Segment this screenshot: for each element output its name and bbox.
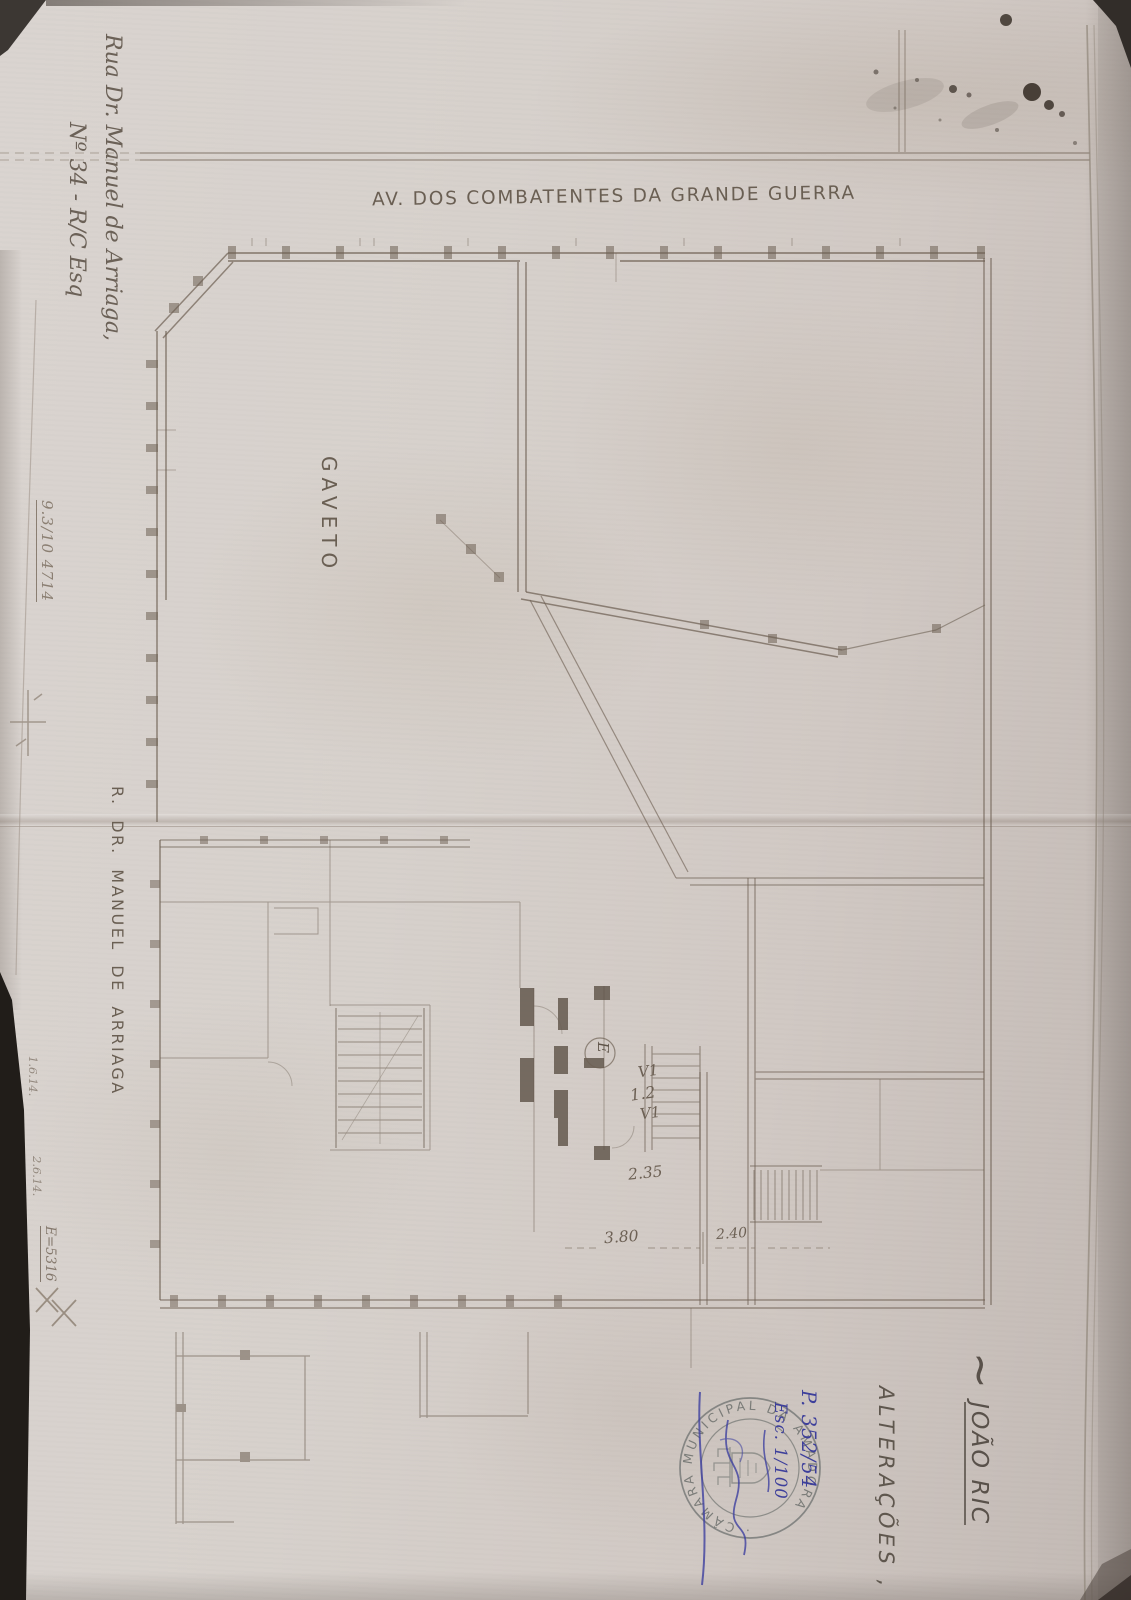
scanned-floor-plan: · CÂMARA MUNICIPAL DA AMADORA	[0, 0, 1131, 1600]
scale-note: Esc. 1/100	[771, 1402, 790, 1500]
pencil-ref-text: 9.3/10 4714	[36, 500, 56, 602]
margin-address-note: Rua Dr. Manuel de Arriaga, Nº 34 - R/C E…	[58, 34, 130, 354]
dim-2-40-label: 2.40	[715, 1225, 747, 1243]
stair-a	[336, 1008, 424, 1148]
v1-lower-label: V1	[639, 1103, 661, 1123]
pencil-note-3-text: E=5316	[40, 1226, 58, 1282]
stair-c	[750, 1166, 822, 1222]
right-paper-edge	[1084, 0, 1131, 1600]
lower-apartment-walls	[150, 840, 985, 1368]
pencil-note-2: 2.6.14.	[30, 1156, 44, 1196]
title-tilde: ~	[955, 1352, 1006, 1397]
alteracoes-label: ALTERAÇÕES ,	[874, 1386, 898, 1591]
pencil-note-3: E=5316	[42, 1226, 58, 1282]
project-title-label: ~ JOÃO RIC	[955, 1352, 1006, 1525]
x-marks-icon	[36, 1288, 76, 1326]
address-line-1: Rua Dr. Manuel de Arriaga,	[100, 34, 125, 341]
dim-3-80-label: 3.80	[603, 1227, 639, 1247]
gaveto-label: GAVETO	[317, 456, 341, 574]
pencil-note-1: 1.6.14.	[26, 1056, 40, 1096]
address-line-2: Nº 34 - R/C Esq	[58, 34, 94, 354]
bottom-fragment-walls	[176, 1332, 528, 1524]
mid-band-walls	[160, 836, 984, 885]
left-wall-gaveto	[146, 253, 233, 822]
process-number-note: P. 352/54	[797, 1390, 820, 1489]
left-fold-line	[16, 300, 36, 975]
dim-2-35-label: 2.35	[627, 1162, 663, 1184]
ink-blotches	[863, 14, 1077, 145]
street-left-label: R. DR. MANUEL DE ARRIAGA	[108, 786, 127, 1096]
elevator-letter: E	[594, 1042, 612, 1053]
pencil-ref-note: 9.3/10 4714	[38, 500, 56, 602]
dark-corner-top-left	[0, 0, 46, 56]
v1-upper-label: V1	[637, 1061, 659, 1081]
top-facade-wall	[228, 238, 985, 261]
interior-walls-upper	[436, 253, 991, 1305]
plus-mark-icon	[10, 690, 46, 756]
dim-1-2-label: 1.2	[629, 1082, 657, 1104]
title-name: JOÃO RIC	[964, 1402, 994, 1525]
